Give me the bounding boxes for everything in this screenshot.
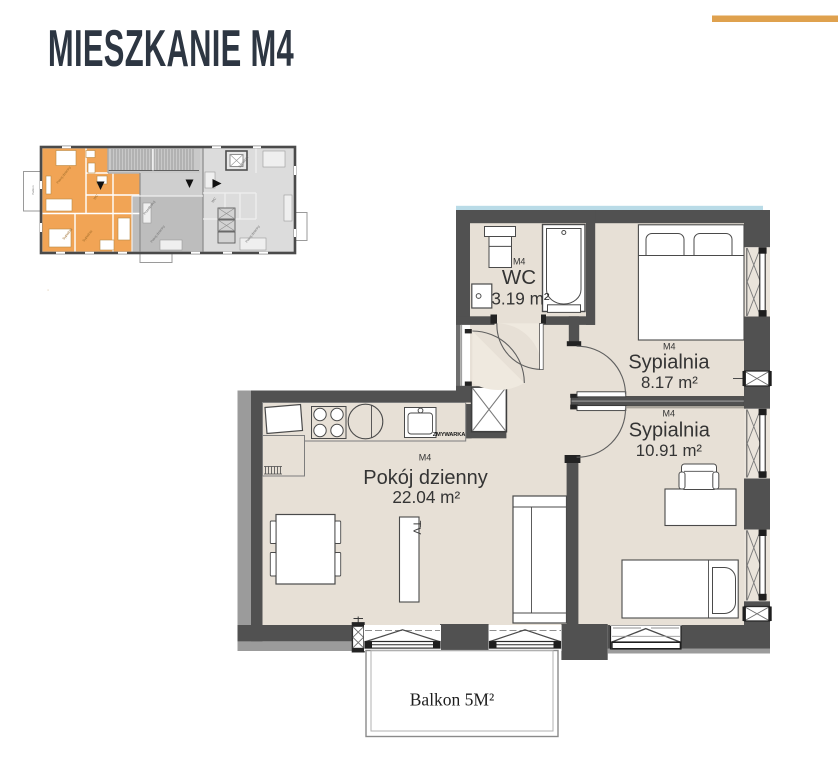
svg-text:ZMYWARKA: ZMYWARKA xyxy=(433,432,467,438)
svg-text:TV: TV xyxy=(411,521,423,536)
svg-text:3.19 m²: 3.19 m² xyxy=(491,288,550,308)
svg-text:Sypialnia: Sypialnia xyxy=(628,352,710,374)
svg-text:8.17 m²: 8.17 m² xyxy=(641,373,698,392)
svg-text:M4: M4 xyxy=(419,452,432,462)
svg-text:Balkon: Balkon xyxy=(31,185,35,195)
svg-text:M4: M4 xyxy=(513,256,526,266)
svg-text:Pokój dzienny: Pokój dzienny xyxy=(363,467,488,489)
svg-text:Sypialnia: Sypialnia xyxy=(629,419,711,441)
svg-text:WC: WC xyxy=(502,266,536,289)
svg-text:M4: M4 xyxy=(663,409,676,419)
svg-text:Balkon 5M²: Balkon 5M² xyxy=(410,690,494,710)
svg-text:M4: M4 xyxy=(663,342,676,352)
svg-text:MIESZKANIE M4: MIESZKANIE M4 xyxy=(48,20,294,78)
svg-text:22.04 m²: 22.04 m² xyxy=(392,487,460,507)
svg-text:10.91 m²: 10.91 m² xyxy=(636,441,703,460)
